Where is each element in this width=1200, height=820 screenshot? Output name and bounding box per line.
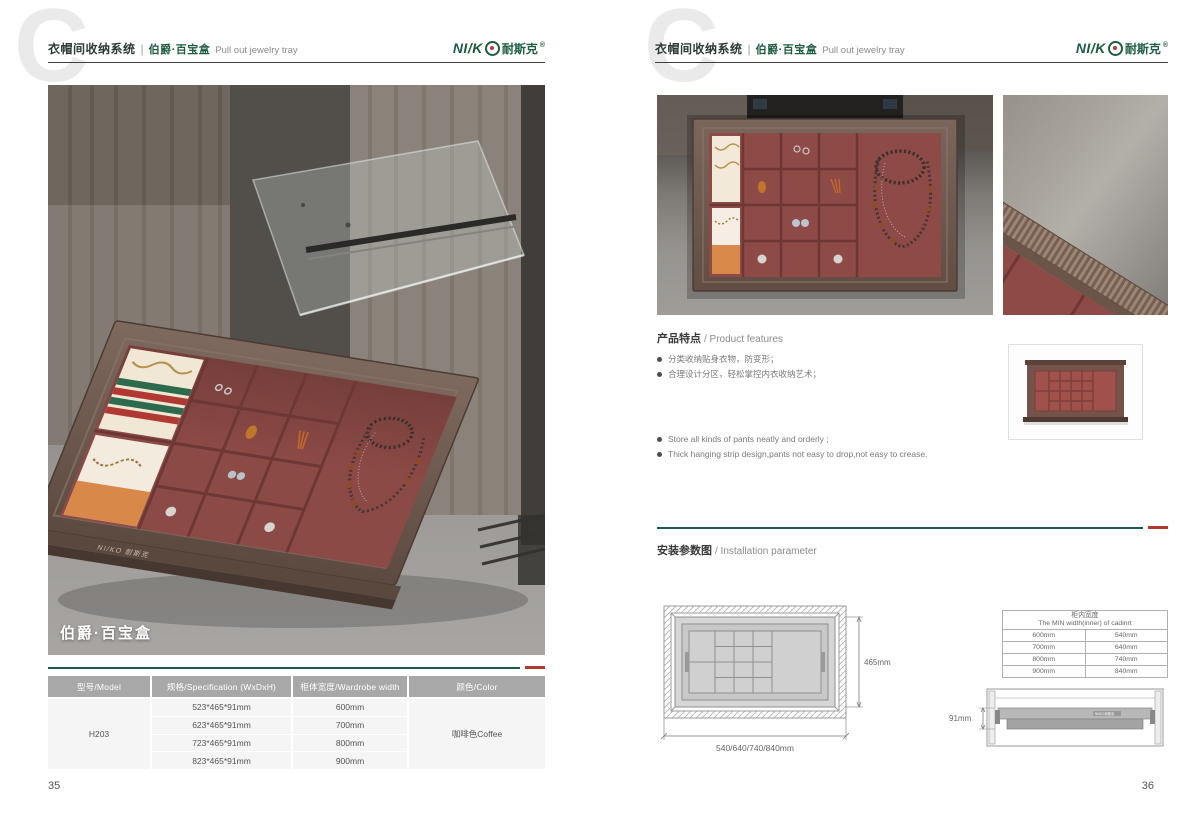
table-cell: 600mm	[293, 699, 407, 717]
features-bullets-en: Store all kinds of pants neatly and orde…	[657, 432, 927, 462]
table-row: 800mm 740mm	[1003, 654, 1168, 666]
table-cell: 523*465*91mm	[152, 699, 291, 717]
spec-table-body: H203 523*465*91mm 623*465*91mm 723*465*9…	[48, 699, 545, 769]
cabinet-side-left	[989, 691, 995, 744]
inner-width-cell: 740mm	[1085, 654, 1168, 666]
cabinet-side-right	[1155, 691, 1161, 744]
features-bullets-zh: 分类收纳贴身衣物，防变形； 合理设计分区，轻松掌控内衣收纳艺术；	[657, 352, 821, 382]
header-product-title-zh: 伯爵·百宝盒	[756, 41, 818, 57]
tray-topview-illustration	[657, 95, 993, 315]
accent-divider	[48, 666, 545, 669]
tray-topview-photo	[657, 95, 993, 315]
dim-width-label: 540/640/740/840mm	[716, 743, 794, 753]
table-cell: 700mm	[293, 717, 407, 735]
table-row: 600mm 540mm	[1003, 630, 1168, 642]
col-header-color: 颜色/Color	[409, 676, 545, 697]
header-titles: 衣帽间收纳系统 | 伯爵·百宝盒 Pull out jewelry tray	[655, 40, 905, 57]
dim-depth-label: 465mm	[864, 658, 891, 667]
red-line	[525, 666, 545, 669]
bullet-text: 分类收纳贴身衣物，防变形；	[668, 352, 779, 367]
dimension-width	[661, 718, 849, 740]
table-row: 900mm 840mm	[1003, 666, 1168, 678]
registered-mark: ®	[540, 42, 545, 49]
wardrobe-photo-illustration: NI/KO 耐斯克	[48, 85, 545, 655]
features-title: 产品特点/ Product features	[657, 330, 783, 346]
header-product-title-zh: 伯爵·百宝盒	[149, 41, 211, 57]
installation-side-drawing: NI/KO 耐斯克 91mm	[945, 686, 1170, 755]
installation-plan-drawing: 465mm 540/640/740/840mm	[658, 600, 893, 763]
slide-rail-left	[753, 99, 767, 109]
logo-red-dot-icon	[1113, 46, 1117, 50]
logo-latin-text: NI/K	[1076, 40, 1106, 56]
bullet-text: 合理设计分区，轻松掌控内衣收纳艺术；	[668, 367, 821, 382]
table-cell: 900mm	[293, 752, 407, 769]
header-product-title-en: Pull out jewelry tray	[215, 45, 297, 56]
inner-width-cell: 640mm	[1085, 642, 1168, 654]
green-line	[48, 667, 520, 669]
header-titles: 衣帽间收纳系统 | 伯爵·百宝盒 Pull out jewelry tray	[48, 40, 298, 57]
spec-table-header: 型号/Model 规格/Specification (WxDxH) 柜体宽度/W…	[48, 676, 545, 697]
registered-mark: ®	[1163, 42, 1168, 49]
accent-divider	[657, 526, 1168, 529]
model-cell: H203	[48, 699, 150, 769]
bullet-icon	[657, 372, 662, 377]
page-number: 36	[1142, 780, 1154, 792]
bullet-text: Store all kinds of pants neatly and orde…	[668, 432, 829, 447]
side-drawing-svg: NI/KO 耐斯克 91mm	[945, 686, 1170, 750]
tray-detail-illustration	[1003, 95, 1168, 315]
dim-height-label: 91mm	[949, 714, 972, 723]
header-system-title: 衣帽间收纳系统	[48, 40, 136, 57]
col-header-width: 柜体宽度/Wardrobe width	[293, 676, 407, 697]
logo-chinese-text: 耐斯克	[502, 40, 538, 57]
spec-column: 523*465*91mm 623*465*91mm 723*465*91mm 8…	[152, 699, 291, 769]
table-cell: 800mm	[293, 735, 407, 753]
wardrobe-width-cell: 800mm	[1003, 654, 1086, 666]
wardrobe-width-cell: 600mm	[1003, 630, 1086, 642]
tray-top-edge	[1025, 360, 1126, 365]
logo-latin-text: NI/K	[453, 40, 483, 56]
wardrobe-width-cell: 900mm	[1003, 666, 1086, 678]
tray-plan	[671, 613, 839, 711]
feature-bullet: 合理设计分区，轻松掌控内衣收纳艺术；	[657, 367, 821, 382]
green-line	[657, 527, 1143, 529]
bullet-icon	[657, 437, 662, 442]
plan-drawing-svg: 465mm 540/640/740/840mm	[658, 600, 893, 758]
page-number: 35	[48, 780, 60, 792]
features-title-en: / Product features	[704, 334, 783, 345]
table-cell: 823*465*91mm	[152, 752, 291, 769]
catalog-page-36: C 衣帽间收纳系统 | 伯爵·百宝盒 Pull out jewelry tray…	[600, 0, 1200, 820]
installation-title-zh: 安装参数图	[657, 545, 712, 557]
installation-title-en: / Installation parameter	[715, 546, 817, 557]
page-header: 衣帽间收纳系统 | 伯爵·百宝盒 Pull out jewelry tray N…	[48, 34, 545, 63]
col-header-spec: 规格/Specification (WxDxH)	[152, 676, 291, 697]
tray-brand-label: NI/KO 耐斯克	[1095, 711, 1115, 716]
product-thumbnail	[1008, 344, 1143, 440]
wardrobe-width-cell: 700mm	[1003, 642, 1086, 654]
bullet-text: Thick hanging strip design,pants not eas…	[668, 447, 927, 462]
dimension-depth	[846, 617, 863, 707]
inner-width-cell: 540mm	[1085, 630, 1168, 642]
thumb-shadow	[1024, 422, 1128, 425]
nisko-logo: NI/K 耐斯克 ®	[1076, 40, 1168, 57]
installation-title: 安装参数图/ Installation parameter	[657, 542, 817, 558]
header-product-title-en: Pull out jewelry tray	[822, 45, 904, 56]
min-width-title-en: The MIN width(inner) of cadinrt	[1005, 620, 1165, 628]
header-separator: |	[748, 42, 751, 56]
header-system-title: 衣帽间收纳系统	[655, 40, 743, 57]
tray-side-view: NI/KO 耐斯克	[995, 708, 1155, 729]
nisko-logo: NI/K 耐斯克 ®	[453, 40, 545, 57]
feature-bullet: Store all kinds of pants neatly and orde…	[657, 432, 927, 447]
page-header: 衣帽间收纳系统 | 伯爵·百宝盒 Pull out jewelry tray N…	[655, 34, 1168, 63]
feature-bullet: 分类收纳贴身衣物，防变形；	[657, 352, 821, 367]
tray-render-illustration	[1010, 346, 1141, 438]
features-title-zh: 产品特点	[657, 333, 701, 345]
photo-caption: 伯爵·百宝盒	[60, 622, 152, 643]
header-separator: |	[141, 42, 144, 56]
slide-rail-right	[883, 99, 897, 109]
width-column: 600mm 700mm 800mm 900mm	[293, 699, 407, 769]
table-cell: 723*465*91mm	[152, 735, 291, 753]
jewelry-tray-top	[693, 119, 957, 291]
wardrobe-edge-shadow	[521, 85, 545, 545]
logo-red-dot-icon	[490, 46, 494, 50]
logo-chinese-text: 耐斯克	[1125, 40, 1161, 57]
min-width-table-header: 柜内宽度 The MIN width(inner) of cadinrt	[1003, 611, 1168, 630]
inner-width-cell: 840mm	[1085, 666, 1168, 678]
red-line	[1148, 526, 1168, 529]
feature-bullet: Thick hanging strip design,pants not eas…	[657, 447, 927, 462]
tray-detail-photo	[1003, 95, 1168, 315]
min-width-title-zh: 柜内宽度	[1005, 612, 1165, 620]
color-cell: 咖啡色Coffee	[409, 699, 545, 769]
bullet-icon	[657, 452, 662, 457]
bullet-icon	[657, 357, 662, 362]
min-width-table: 柜内宽度 The MIN width(inner) of cadinrt 600…	[1002, 610, 1168, 678]
table-cell: 623*465*91mm	[152, 717, 291, 735]
tray-bottom-edge	[1023, 417, 1128, 422]
logo-circle-icon	[485, 41, 500, 56]
spec-table: 型号/Model 规格/Specification (WxDxH) 柜体宽度/W…	[48, 676, 545, 769]
logo-circle-icon	[1108, 41, 1123, 56]
table-row: 700mm 640mm	[1003, 642, 1168, 654]
wardrobe-tray-photo: NI/KO 耐斯克 伯爵·百宝盒	[48, 85, 545, 655]
catalog-page-35: C 衣帽间收纳系统 | 伯爵·百宝盒 Pull out jewelry tray…	[0, 0, 600, 820]
col-header-model: 型号/Model	[48, 676, 150, 697]
